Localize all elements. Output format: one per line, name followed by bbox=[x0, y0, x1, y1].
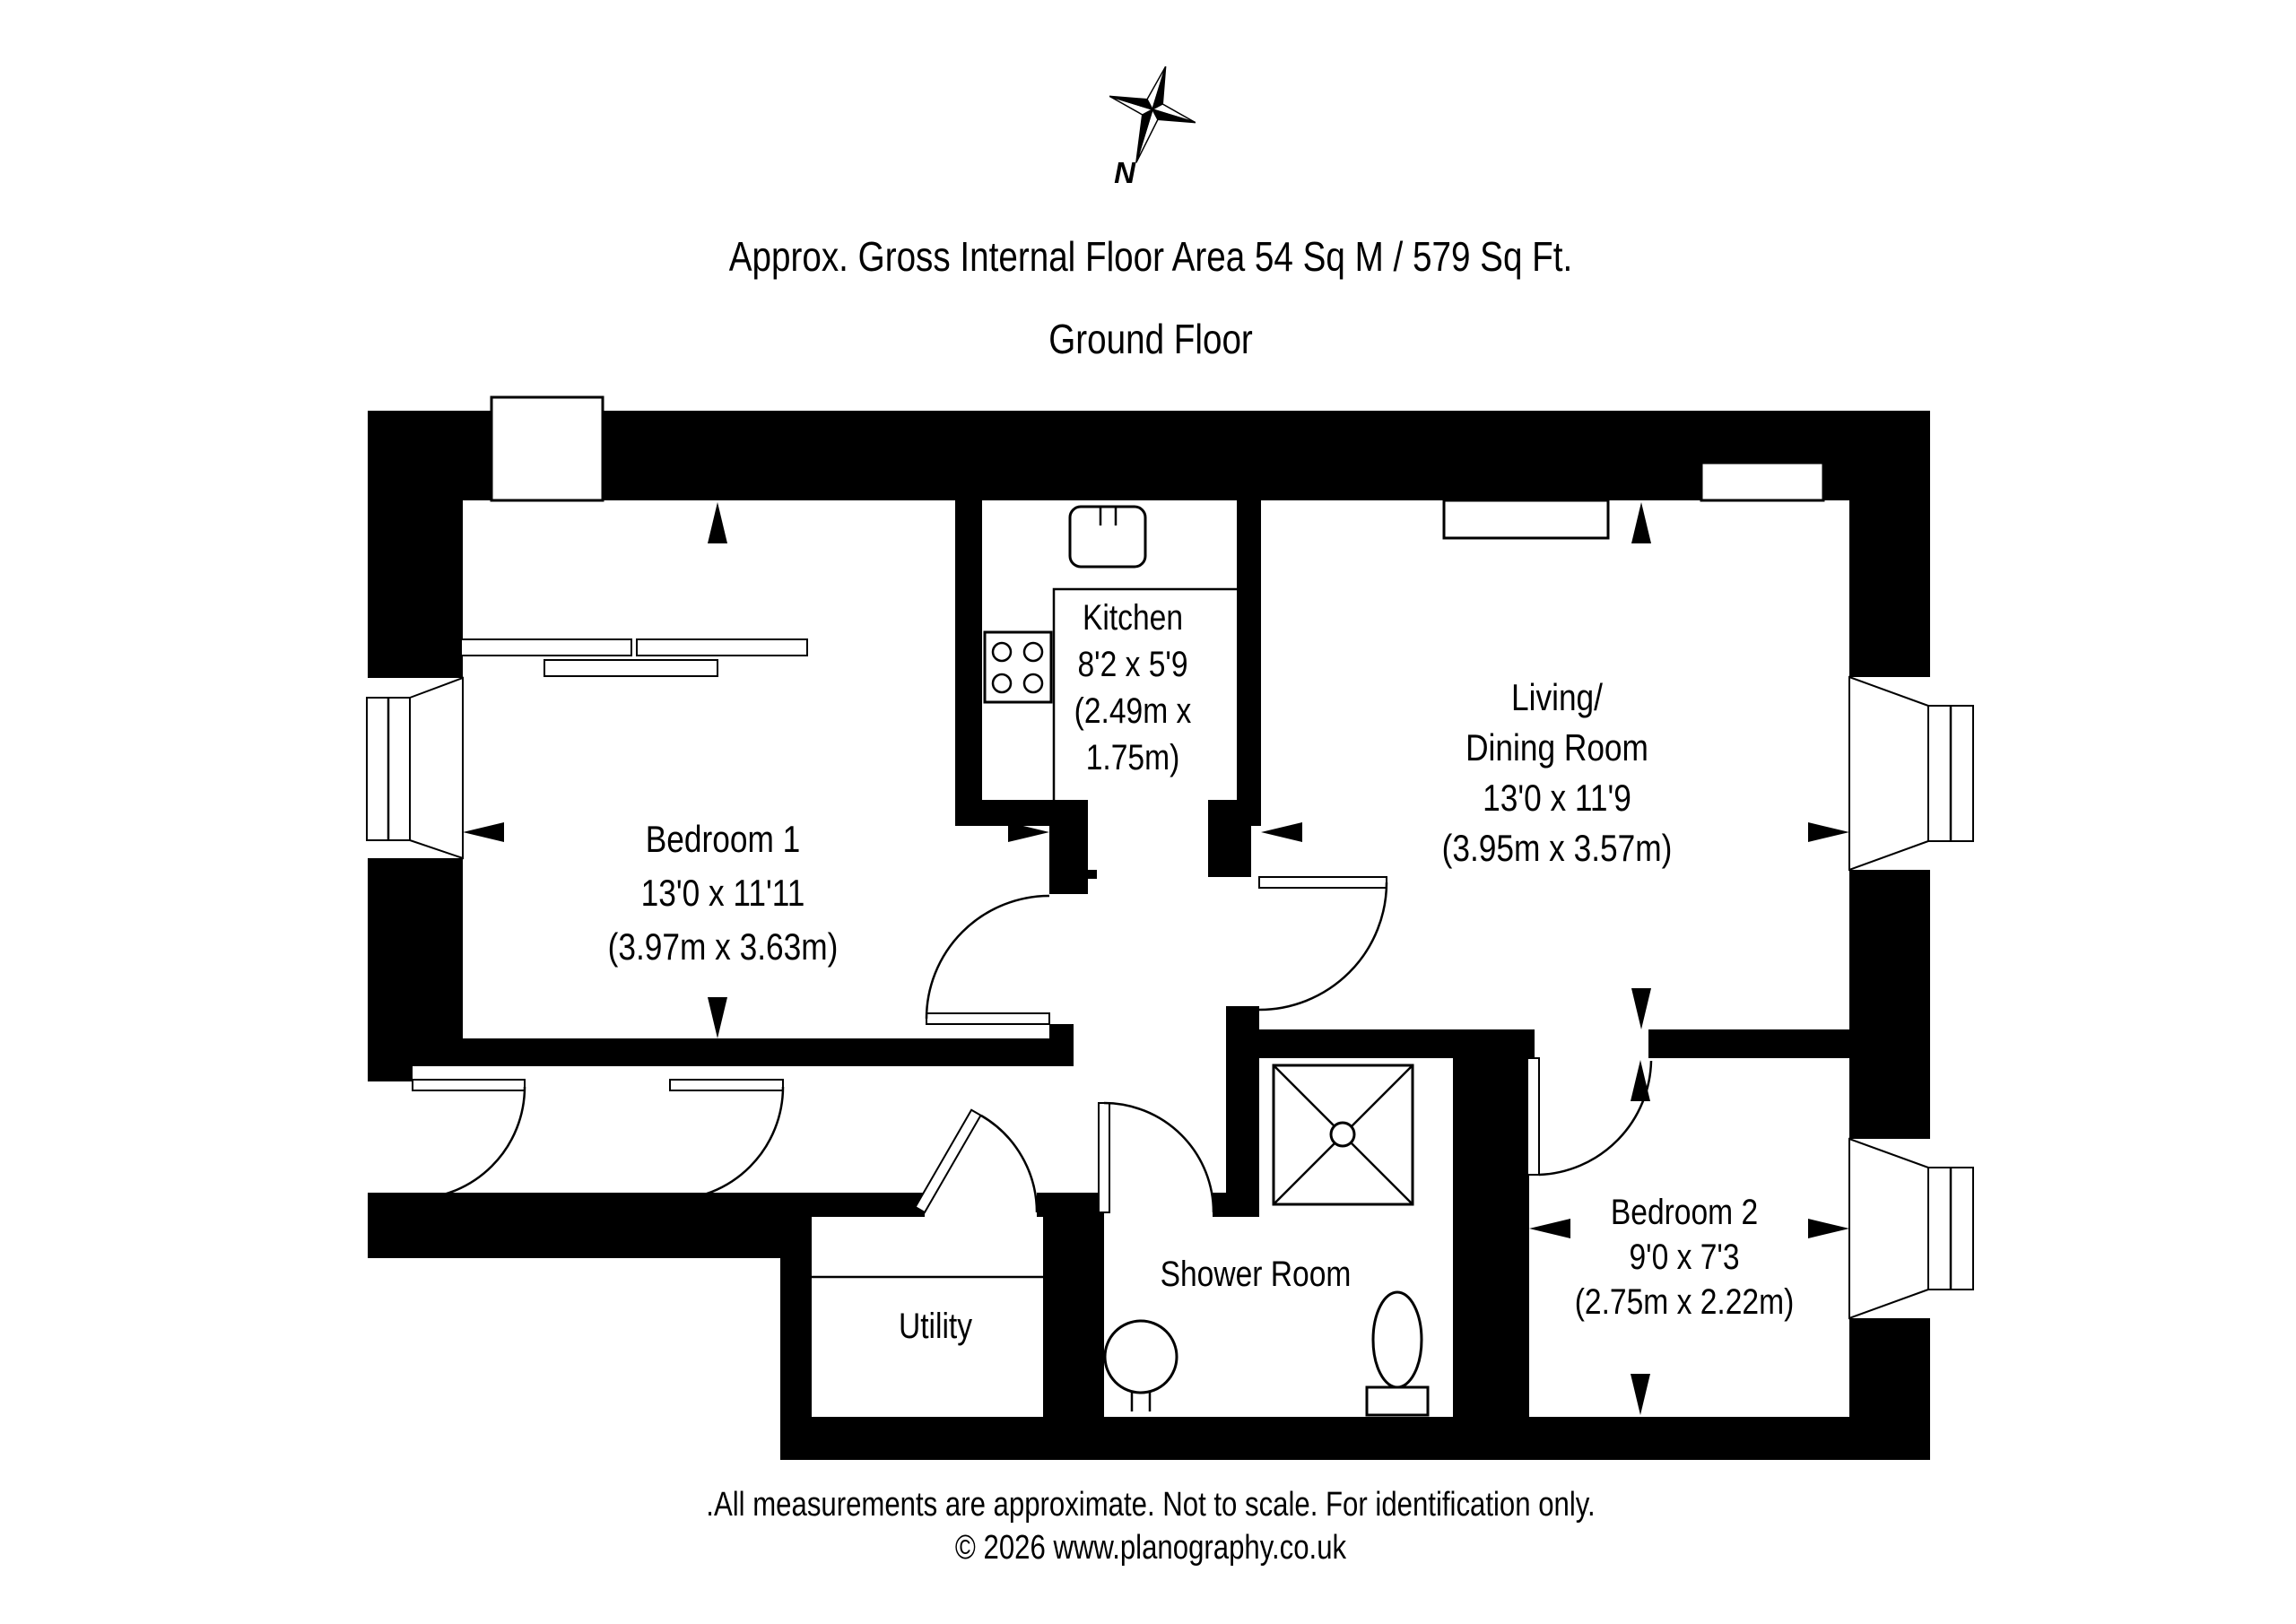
bedroom1-dims-imperial: 13'0 x 11'11 bbox=[641, 873, 805, 915]
shower-room-label: Shower Room bbox=[1161, 1254, 1352, 1293]
wall-hall-kitchen-pier bbox=[1049, 800, 1088, 894]
wall-left-lower bbox=[368, 1038, 413, 1081]
living-dims-metric: (3.95m x 3.57m) bbox=[1442, 828, 1673, 870]
bedroom2-dims-metric: (2.75m x 2.22m) bbox=[1575, 1281, 1795, 1321]
bedroom2-dims-imperial: 9'0 x 7'3 bbox=[1630, 1237, 1740, 1276]
wall-left-mid bbox=[368, 858, 463, 1038]
kitchen-dims-imperial: 8'2 x 5'9 bbox=[1078, 644, 1188, 683]
living-wall-recess bbox=[1701, 463, 1823, 500]
wall-right-mid bbox=[1849, 870, 1930, 1139]
kitchen-dims-metric-1: (2.49m x bbox=[1074, 690, 1192, 730]
wardrobe-front bbox=[544, 660, 717, 676]
kitchen-hob bbox=[985, 632, 1051, 702]
page-title: Approx. Gross Internal Floor Area 54 Sq … bbox=[729, 234, 1572, 280]
wardrobe-left bbox=[461, 639, 631, 656]
bedroom1-wall-recess bbox=[491, 397, 603, 500]
living-fitted-unit bbox=[1444, 500, 1608, 538]
wall-right-upper bbox=[1849, 500, 1930, 677]
floor-plan-page: Approx. Gross Internal Floor Area 54 Sq … bbox=[0, 0, 2296, 1624]
floor-plan: Approx. Gross Internal Floor Area 54 Sq … bbox=[0, 0, 2296, 1624]
utility-label: Utility bbox=[899, 1306, 973, 1345]
shower-tray-icon bbox=[1274, 1065, 1413, 1204]
living-window bbox=[1849, 677, 1973, 870]
floor-title: Ground Floor bbox=[1048, 317, 1253, 362]
wall-living-door-upper-stub bbox=[1208, 826, 1251, 877]
kitchen-label: Kitchen bbox=[1083, 597, 1183, 637]
kitchen-dims-metric-2: 1.75m) bbox=[1086, 737, 1180, 777]
wall-corridor-bottom-3 bbox=[1213, 1193, 1259, 1217]
bedroom1-label: Bedroom 1 bbox=[646, 819, 800, 861]
wardrobe-right bbox=[637, 639, 807, 656]
wall-utility-shower bbox=[1043, 1193, 1104, 1417]
wall-doorstop-tab bbox=[1074, 870, 1097, 879]
wall-bottom-left bbox=[368, 1212, 780, 1258]
bedroom1-dims-metric: (3.97m x 3.63m) bbox=[608, 926, 839, 968]
living-label-1: Living/ bbox=[1511, 677, 1603, 719]
wall-shower-bedroom2 bbox=[1453, 1058, 1529, 1417]
wall-corridor-bottom-1 bbox=[413, 1193, 925, 1217]
wall-bedroom1-door-jamb bbox=[1049, 1024, 1074, 1066]
footer-disclaimer: .All measurements are approximate. Not t… bbox=[706, 1486, 1595, 1524]
bedroom1-window bbox=[367, 678, 463, 858]
kitchen-sink bbox=[1070, 507, 1145, 567]
wall-right-lower bbox=[1849, 1318, 1930, 1417]
wall-living-bedroom2-left bbox=[1226, 1029, 1535, 1058]
living-dims-imperial: 13'0 x 11'9 bbox=[1483, 777, 1631, 820]
living-label-2: Dining Room bbox=[1465, 727, 1648, 769]
wall-left-upper bbox=[368, 500, 463, 678]
footer-copyright: © 2026 www.planography.co.uk bbox=[955, 1529, 1347, 1567]
wall-bedroom1-bottom bbox=[413, 1038, 1074, 1066]
wall-bedroom1-kitchen bbox=[955, 500, 982, 800]
wall-bottom bbox=[780, 1417, 1930, 1460]
bedroom2-label: Bedroom 2 bbox=[1611, 1192, 1758, 1231]
wall-kitchen-stub bbox=[1208, 800, 1261, 826]
compass-north-label: N bbox=[1114, 156, 1136, 189]
wall-kitchen-living bbox=[1237, 500, 1261, 800]
